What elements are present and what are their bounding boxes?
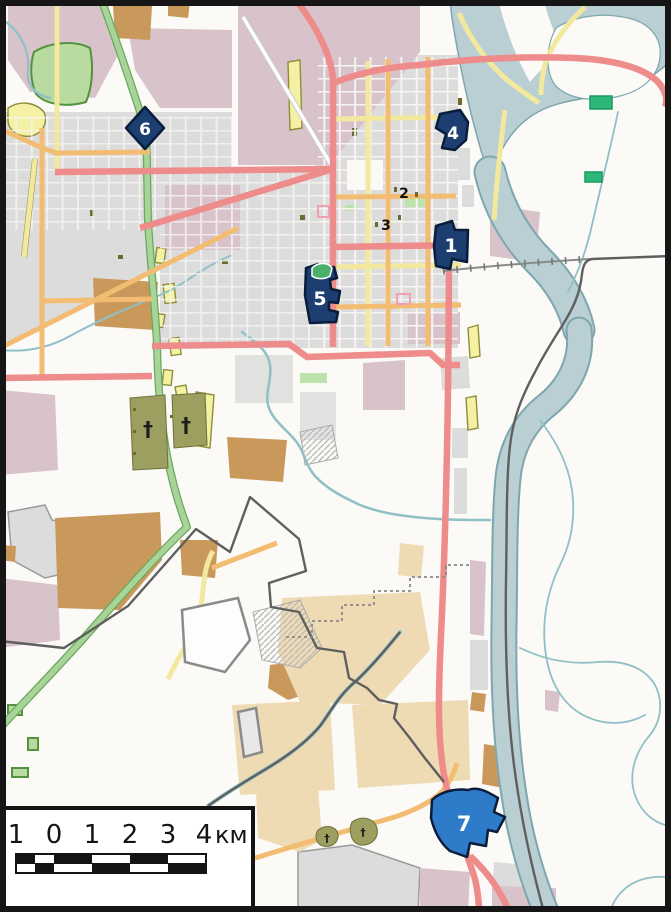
cemetery-cross-icon: † xyxy=(181,413,191,437)
green-area-icon xyxy=(590,96,612,109)
scale-bar: 1 0 1 2 3 4 км xyxy=(4,808,253,908)
marker-3-label: 3 xyxy=(381,218,391,234)
marker-4-label: 4 xyxy=(447,124,459,144)
scale-tick-label-5: 4 xyxy=(196,820,213,850)
marker-5-inner-green xyxy=(312,264,332,279)
scale-tick-label-0: 1 xyxy=(8,820,25,850)
scale-unit-label: км xyxy=(215,821,248,849)
marker-5-label: 5 xyxy=(313,288,326,310)
scale-tick-label-3: 2 xyxy=(122,820,139,850)
scale-tick-label-2: 1 xyxy=(84,820,101,850)
marker-7-label: 7 xyxy=(457,812,472,836)
marker-1-label: 1 xyxy=(444,235,457,257)
city-map-image: † † † † 6 4 1 5 7 xyxy=(0,0,671,912)
church-cross-icon: † xyxy=(360,826,366,839)
scale-tick-label-4: 3 xyxy=(160,820,177,850)
marker-2-label: 2 xyxy=(399,186,409,202)
cemetery-cross-icon: † xyxy=(143,417,153,441)
city-map-screenshot: † † † † 6 4 1 5 7 xyxy=(0,0,671,912)
road-red xyxy=(55,169,335,172)
church-cross-icon: † xyxy=(324,832,330,845)
scale-tick-label-1: 0 xyxy=(46,820,63,850)
map-marker-5[interactable]: 5 xyxy=(305,264,340,324)
green-area-icon xyxy=(585,172,602,182)
marker-6-label: 6 xyxy=(139,120,151,140)
